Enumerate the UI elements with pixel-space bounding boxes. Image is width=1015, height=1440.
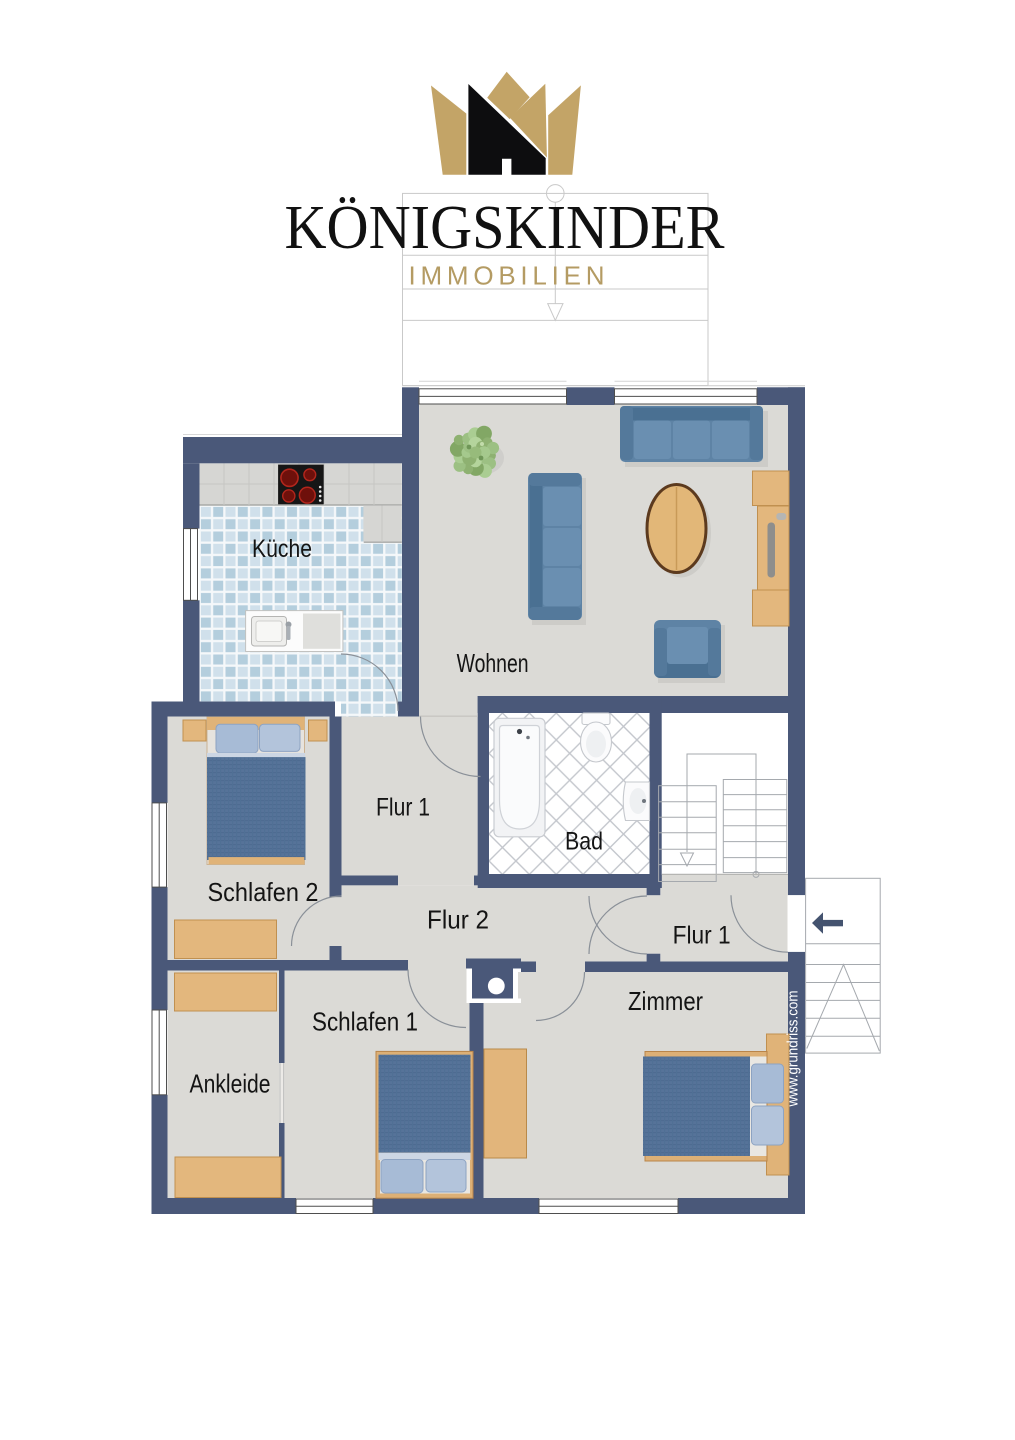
svg-text:Flur 2: Flur 2 xyxy=(427,905,489,935)
svg-text:Ankleide: Ankleide xyxy=(190,1069,271,1099)
svg-text:Küche: Küche xyxy=(252,535,312,563)
svg-text:Schlafen 2: Schlafen 2 xyxy=(208,877,319,907)
svg-text:IMMOBILIEN: IMMOBILIEN xyxy=(409,260,605,290)
svg-text:Flur 1: Flur 1 xyxy=(376,794,430,822)
svg-text:Zimmer: Zimmer xyxy=(628,986,703,1016)
svg-text:Bad: Bad xyxy=(565,828,603,856)
svg-text:Wohnen: Wohnen xyxy=(457,648,529,678)
svg-text:KÖNIGSKINDER: KÖNIGSKINDER xyxy=(285,194,726,262)
svg-text:Flur 1: Flur 1 xyxy=(673,922,731,950)
svg-text:www.grundriss.com: www.grundriss.com xyxy=(786,991,802,1108)
svg-text:Schlafen 1: Schlafen 1 xyxy=(312,1007,418,1037)
